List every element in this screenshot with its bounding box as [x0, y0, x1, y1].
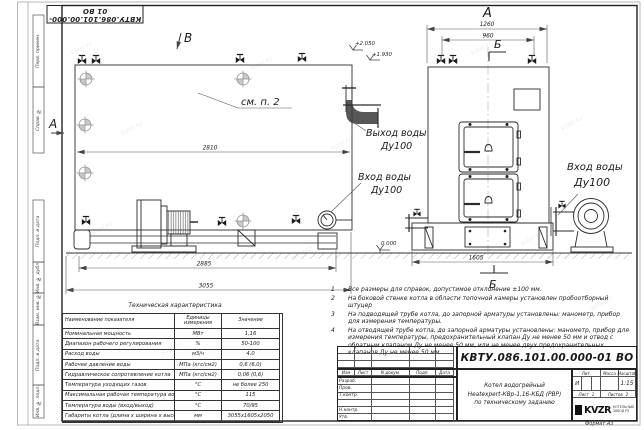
pressure-gauge: [318, 211, 352, 229]
sig-label: Разраб.: [338, 378, 372, 385]
tech-row-name: Номинальная мощность: [63, 329, 175, 339]
scale-header: Масштаб: [619, 370, 636, 377]
col-header: N докум.: [372, 370, 410, 376]
fan-unit: [551, 199, 613, 253]
product-name-line2: Heatexpert-КВр-1,16-КБД (РВР): [468, 391, 562, 400]
note-text: На боковой стенке котла в области топочн…: [348, 295, 629, 310]
sheets-label: Листов: [608, 392, 623, 397]
tech-row-value: 0,6 (6,0): [222, 360, 280, 370]
sheet-value: 1: [592, 392, 595, 397]
title-block-right: Лит. Масса Масштаб И 1:15 Лист 1 Листов …: [572, 369, 637, 421]
tech-col-header: Наименование показателя: [63, 314, 175, 329]
dim-960: 960: [482, 34, 493, 40]
product-name: Котел водогрейный Heatexpert-КВр-1,16-КБ…: [457, 369, 572, 421]
tech-table-title: Техническая характеристика: [95, 302, 255, 309]
tech-row-value: 115: [222, 391, 280, 401]
frame-label-perv: Перв. примен.: [33, 15, 44, 87]
note-number: 1: [331, 286, 339, 294]
view-label-v: В: [184, 31, 192, 45]
sheets-value: 2: [626, 392, 629, 397]
frame-label-inv-podl: Инв. № подл.: [33, 385, 44, 418]
lit-header: Лит.: [573, 370, 601, 377]
col-header: Лист: [355, 370, 372, 376]
tech-row-unit: МВт: [175, 329, 222, 339]
note-number: 2: [331, 295, 339, 310]
boiler-base: [412, 223, 553, 250]
product-name-line1: Котел водогрейный: [484, 382, 545, 391]
tech-row-name: Гидравлическое сопротивление котла: [63, 370, 175, 380]
title-block-col-headers: Изм Лист N докум. Подп. Дата: [337, 369, 457, 377]
tech-row-unit: МПа (кгс/см2): [175, 370, 222, 380]
inlet-label-front: Вход воды: [567, 162, 623, 173]
water-outlet-pipe: [342, 85, 381, 128]
tech-row-value: 50-100: [222, 339, 280, 349]
tech-row-name: Рабочее давление воды: [63, 360, 175, 370]
elevation-top: +2.050: [355, 41, 376, 47]
tech-col-header: Единицы измерения: [175, 314, 222, 329]
tech-col-header: Значение: [222, 314, 280, 329]
tech-row-unit: °С: [175, 401, 222, 411]
dim-3055: 3055: [199, 284, 214, 290]
mass-header: Масса: [601, 370, 619, 377]
sig-label: Т.контр.: [338, 393, 372, 400]
sheet-label: Лист: [579, 392, 589, 397]
note-text: Все размеры для справок, допустимое откл…: [348, 286, 542, 294]
tech-row-value: 70/95: [222, 401, 280, 411]
tech-row-name: Максимальная рабочая температура воды: [63, 391, 175, 401]
col-header: Изм: [338, 370, 355, 376]
drawing-sheet: kotel.kz kotel.kz kotel.kz kotel.kz kote…: [0, 0, 644, 430]
elevation-mid: +1.930: [372, 52, 393, 58]
frame-label-podp2: Подп. и дата: [33, 325, 44, 385]
note-text: На подводящей трубе котла, до запорной а…: [348, 311, 629, 326]
sig-label: Пров.: [338, 385, 372, 392]
blower-unit: [132, 200, 198, 252]
boiler-side-view: [51, 33, 390, 253]
doc-number: КВТУ.086.101.00.000-01 ВО: [457, 346, 637, 369]
tech-table: Наименование показателя Единицы измерени…: [62, 313, 283, 423]
tech-row-name: Диапазон рабочего регулирования: [63, 339, 175, 349]
tech-row-unit: МПа (кгс/см2): [175, 360, 222, 370]
tech-row-value: 4,0: [222, 350, 280, 360]
boiler-front-view: [405, 47, 613, 273]
frame-label-inv-dubl: Инв. № дубл.: [33, 262, 44, 293]
note-item: 2 На боковой стенке котла в области топо…: [331, 295, 629, 310]
logo-mark-icon: [575, 405, 582, 415]
tech-row-unit: °С: [175, 391, 222, 401]
drawing-texts: 2810 2885 3055 1260 960 1605 В А А Б Б с…: [48, 6, 623, 291]
logo-subtext2: ЗАВОД РУ: [613, 410, 634, 414]
outlet-dn: Ду100: [380, 141, 412, 152]
tech-row-value: 3055х1605х2050: [222, 411, 280, 421]
factory-logo: KVZR КОТЕЛЬНЫЙ ЗАВОД РУ: [573, 398, 636, 422]
frame-label-sprav: Справ. №: [33, 87, 44, 153]
view-label-a-side: А: [48, 117, 57, 131]
col-header: Подп.: [410, 370, 436, 376]
sig-label: Утв.: [338, 414, 372, 421]
tech-row-unit: %: [175, 339, 222, 349]
product-name-line3: по техническому заданию: [474, 399, 555, 408]
format-label: Формат А3: [585, 421, 613, 427]
signature-rows: Разраб. Пров. Т.контр. Н.контр. Утв.: [337, 377, 457, 421]
view-label-a-front: А: [482, 6, 492, 21]
tech-row-name: Температура уходящих газов: [63, 380, 175, 390]
tech-row-value: не более 250: [222, 380, 280, 390]
tech-row-unit: м3/ч: [175, 350, 222, 360]
tech-row-value: 0,06 (0,6): [222, 370, 280, 380]
tech-row-name: Габариты котла (длина х ширина х высота): [63, 411, 175, 421]
upper-door: [459, 122, 521, 172]
tech-row-name: Расход воды: [63, 350, 175, 360]
section-label-b-top: Б: [494, 38, 502, 51]
scale-value: 1:15: [619, 377, 636, 391]
logo-text: KVZR: [584, 405, 611, 416]
tech-row-name: Температура воды (вход/выход): [63, 401, 175, 411]
note-number: 3: [331, 311, 339, 326]
sig-label: Н.контр.: [338, 407, 372, 414]
tech-row-unit: °С: [175, 380, 222, 390]
tech-row-unit: мм: [175, 411, 222, 421]
inlet-dn-side: Ду100: [370, 185, 402, 196]
dim-2885: 2885: [197, 262, 212, 268]
outlet-label: Выход воды: [366, 128, 427, 139]
ground-line: [66, 253, 632, 259]
lower-door: [459, 174, 521, 222]
dim-1605: 1605: [469, 256, 484, 262]
see-note-ref: см. п. 2: [241, 97, 280, 108]
top-stamp-doc-number: КВТУ.086.101.00.000-01 ВО: [47, 5, 143, 23]
mass-value: [601, 377, 619, 391]
note-item: 1 Все размеры для справок, допустимое от…: [331, 286, 629, 294]
tech-row-value: 1,16: [222, 329, 280, 339]
title-block: Изм Лист N докум. Подп. Дата Разраб. Про…: [337, 346, 637, 421]
col-header: Дата: [436, 370, 454, 376]
dim-2810: 2810: [203, 146, 218, 152]
inlet-dn-front: Ду100: [573, 176, 610, 189]
frame-label-podp1: Подп. и дата: [33, 200, 44, 262]
elevation-zero: 0.000: [381, 241, 397, 247]
note-item: 3 На подводящей трубе котла, до запорной…: [331, 311, 629, 326]
revision-grid: [337, 346, 457, 369]
frame-label-vzam: Взам. инв. №: [33, 293, 44, 325]
lit-value: И: [573, 377, 582, 391]
inlet-label-side: Вход воды: [358, 172, 412, 183]
dim-1260: 1260: [480, 22, 495, 28]
